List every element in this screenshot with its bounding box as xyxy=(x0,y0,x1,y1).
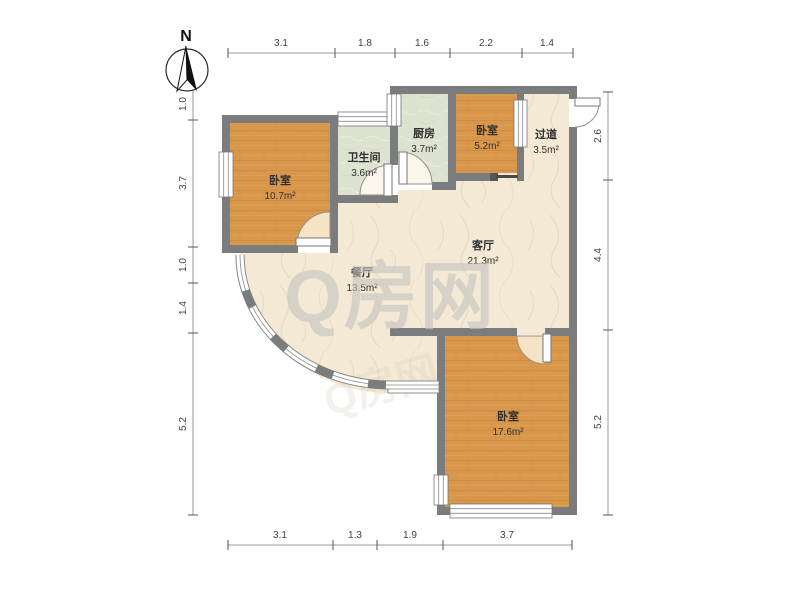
svg-text:1.9: 1.9 xyxy=(403,530,417,541)
svg-text:5.2m²: 5.2m² xyxy=(474,141,500,152)
wall-top xyxy=(390,86,577,94)
svg-text:卫生间: 卫生间 xyxy=(348,150,381,164)
floor-plan-canvas: Q房网 xyxy=(0,0,800,600)
svg-text:3.7: 3.7 xyxy=(500,530,514,541)
svg-text:3.5m²: 3.5m² xyxy=(533,145,559,156)
svg-text:卧室: 卧室 xyxy=(269,173,291,187)
wall-bedroom-left-north xyxy=(222,115,338,123)
watermark-text: Q房网 xyxy=(284,255,496,338)
svg-text:客厅: 客厅 xyxy=(471,238,494,252)
svg-text:17.6m²: 17.6m² xyxy=(492,427,524,438)
svg-text:3.7m²: 3.7m² xyxy=(411,144,437,155)
svg-text:1.8: 1.8 xyxy=(358,38,372,49)
svg-text:5.2: 5.2 xyxy=(593,415,604,429)
sliding-track-bedroom-small xyxy=(496,175,518,178)
window-bedroom-bottom-west xyxy=(434,475,448,505)
wall-kitchen-south xyxy=(432,182,456,190)
svg-text:1.0: 1.0 xyxy=(178,97,189,111)
svg-text:1.0: 1.0 xyxy=(178,258,189,272)
window-bedroom-small-east xyxy=(514,100,527,147)
svg-text:4.4: 4.4 xyxy=(593,248,604,262)
window-kitchen-west xyxy=(387,94,401,126)
svg-text:3.6m²: 3.6m² xyxy=(351,168,377,179)
wall-bedroom-left-east xyxy=(330,123,338,253)
window-dining-south xyxy=(388,381,439,393)
svg-text:3.1: 3.1 xyxy=(273,530,287,541)
svg-text:卧室: 卧室 xyxy=(497,409,519,423)
window-bathroom-north xyxy=(338,112,390,126)
svg-text:1.4: 1.4 xyxy=(178,301,189,315)
svg-text:1.4: 1.4 xyxy=(540,38,554,49)
svg-text:2.2: 2.2 xyxy=(479,38,493,49)
svg-text:1.6: 1.6 xyxy=(415,38,429,49)
wall-bedroom-small-south xyxy=(448,173,495,181)
svg-text:过道: 过道 xyxy=(535,127,557,141)
svg-text:3.1: 3.1 xyxy=(274,38,288,49)
north-label: N xyxy=(180,28,192,45)
wall-bedroom-left-south xyxy=(222,245,298,253)
svg-text:2.6: 2.6 xyxy=(593,129,604,143)
window-bedroom-left xyxy=(219,152,233,197)
window-bedroom-bottom-south xyxy=(450,504,552,518)
wall-right xyxy=(569,127,577,515)
svg-text:10.7m²: 10.7m² xyxy=(264,191,296,202)
svg-text:卧室: 卧室 xyxy=(476,123,498,137)
svg-text:5.2: 5.2 xyxy=(178,417,189,431)
svg-text:厨房: 厨房 xyxy=(413,126,435,140)
svg-text:3.7: 3.7 xyxy=(178,176,189,190)
svg-text:1.3: 1.3 xyxy=(348,530,362,541)
